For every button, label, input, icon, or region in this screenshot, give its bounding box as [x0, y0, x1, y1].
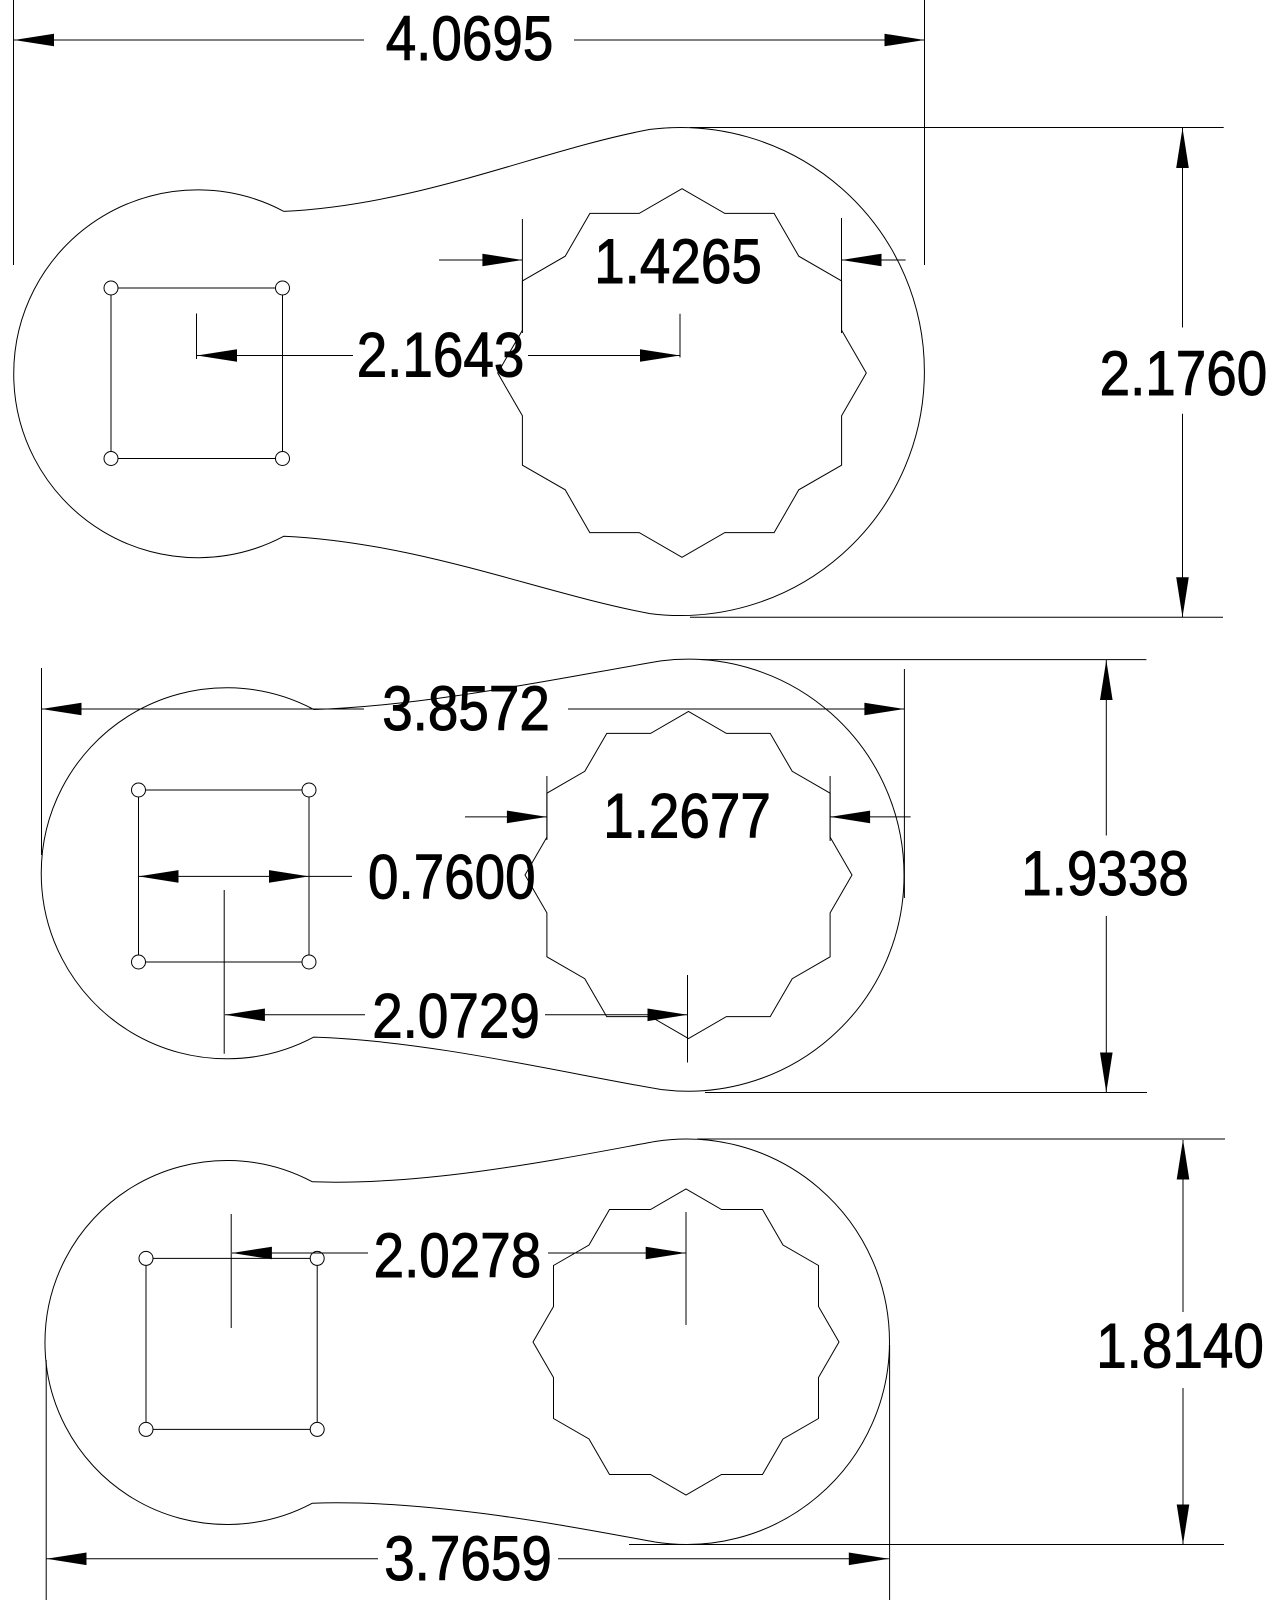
- svg-text:3.8572: 3.8572: [382, 673, 550, 743]
- svg-text:1.9338: 1.9338: [1021, 838, 1189, 908]
- svg-text:3.7659: 3.7659: [384, 1523, 552, 1593]
- svg-text:1.8140: 1.8140: [1096, 1311, 1264, 1381]
- svg-text:4.0695: 4.0695: [386, 3, 554, 73]
- svg-text:2.0729: 2.0729: [372, 981, 540, 1051]
- svg-text:2.1643: 2.1643: [357, 320, 525, 390]
- svg-text:2.1760: 2.1760: [1100, 338, 1268, 408]
- svg-text:0.7600: 0.7600: [368, 842, 536, 912]
- svg-text:1.4265: 1.4265: [594, 226, 762, 296]
- svg-text:1.2677: 1.2677: [603, 781, 771, 851]
- svg-text:2.0278: 2.0278: [374, 1220, 542, 1290]
